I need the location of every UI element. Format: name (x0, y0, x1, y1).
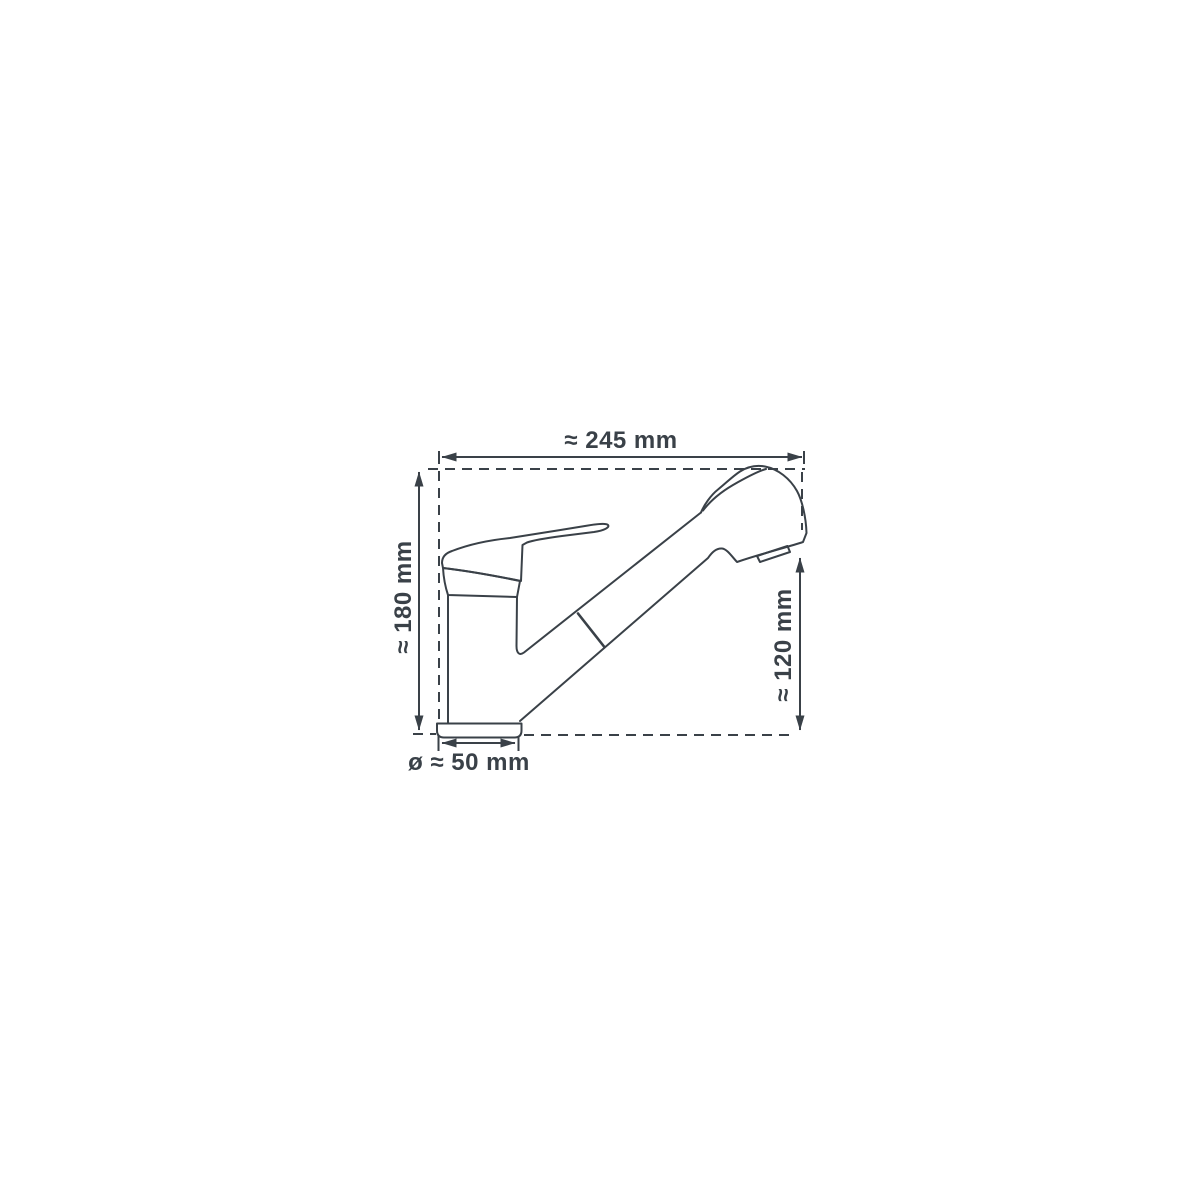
faucet-dimension-diagram: ≈ 245 mm ≈ 180 mm ≈ 120 mm ø ≈ 50 mm (0, 0, 1200, 1200)
base-diameter-label: ø ≈ 50 mm (408, 749, 530, 776)
spray-head-height-label: ≈ 120 mm (770, 588, 797, 701)
dimension-lines (419, 451, 804, 751)
pull-out-spray-head (520, 466, 807, 721)
overall-width-label: ≈ 245 mm (564, 427, 677, 454)
overall-height-label: ≈ 180 mm (390, 540, 417, 653)
spout-joint-line (578, 614, 604, 647)
technical-drawing-svg: ≈ 245 mm ≈ 180 mm ≈ 120 mm ø ≈ 50 mm (0, 0, 1200, 1200)
faucet-cap (443, 568, 520, 597)
faucet-drawing (437, 466, 807, 738)
dashed-bounding-box (413, 469, 805, 735)
faucet-body-and-spout-upper-edge (517, 513, 702, 654)
faucet-handle (442, 524, 608, 581)
faucet-base-plate (437, 724, 522, 738)
